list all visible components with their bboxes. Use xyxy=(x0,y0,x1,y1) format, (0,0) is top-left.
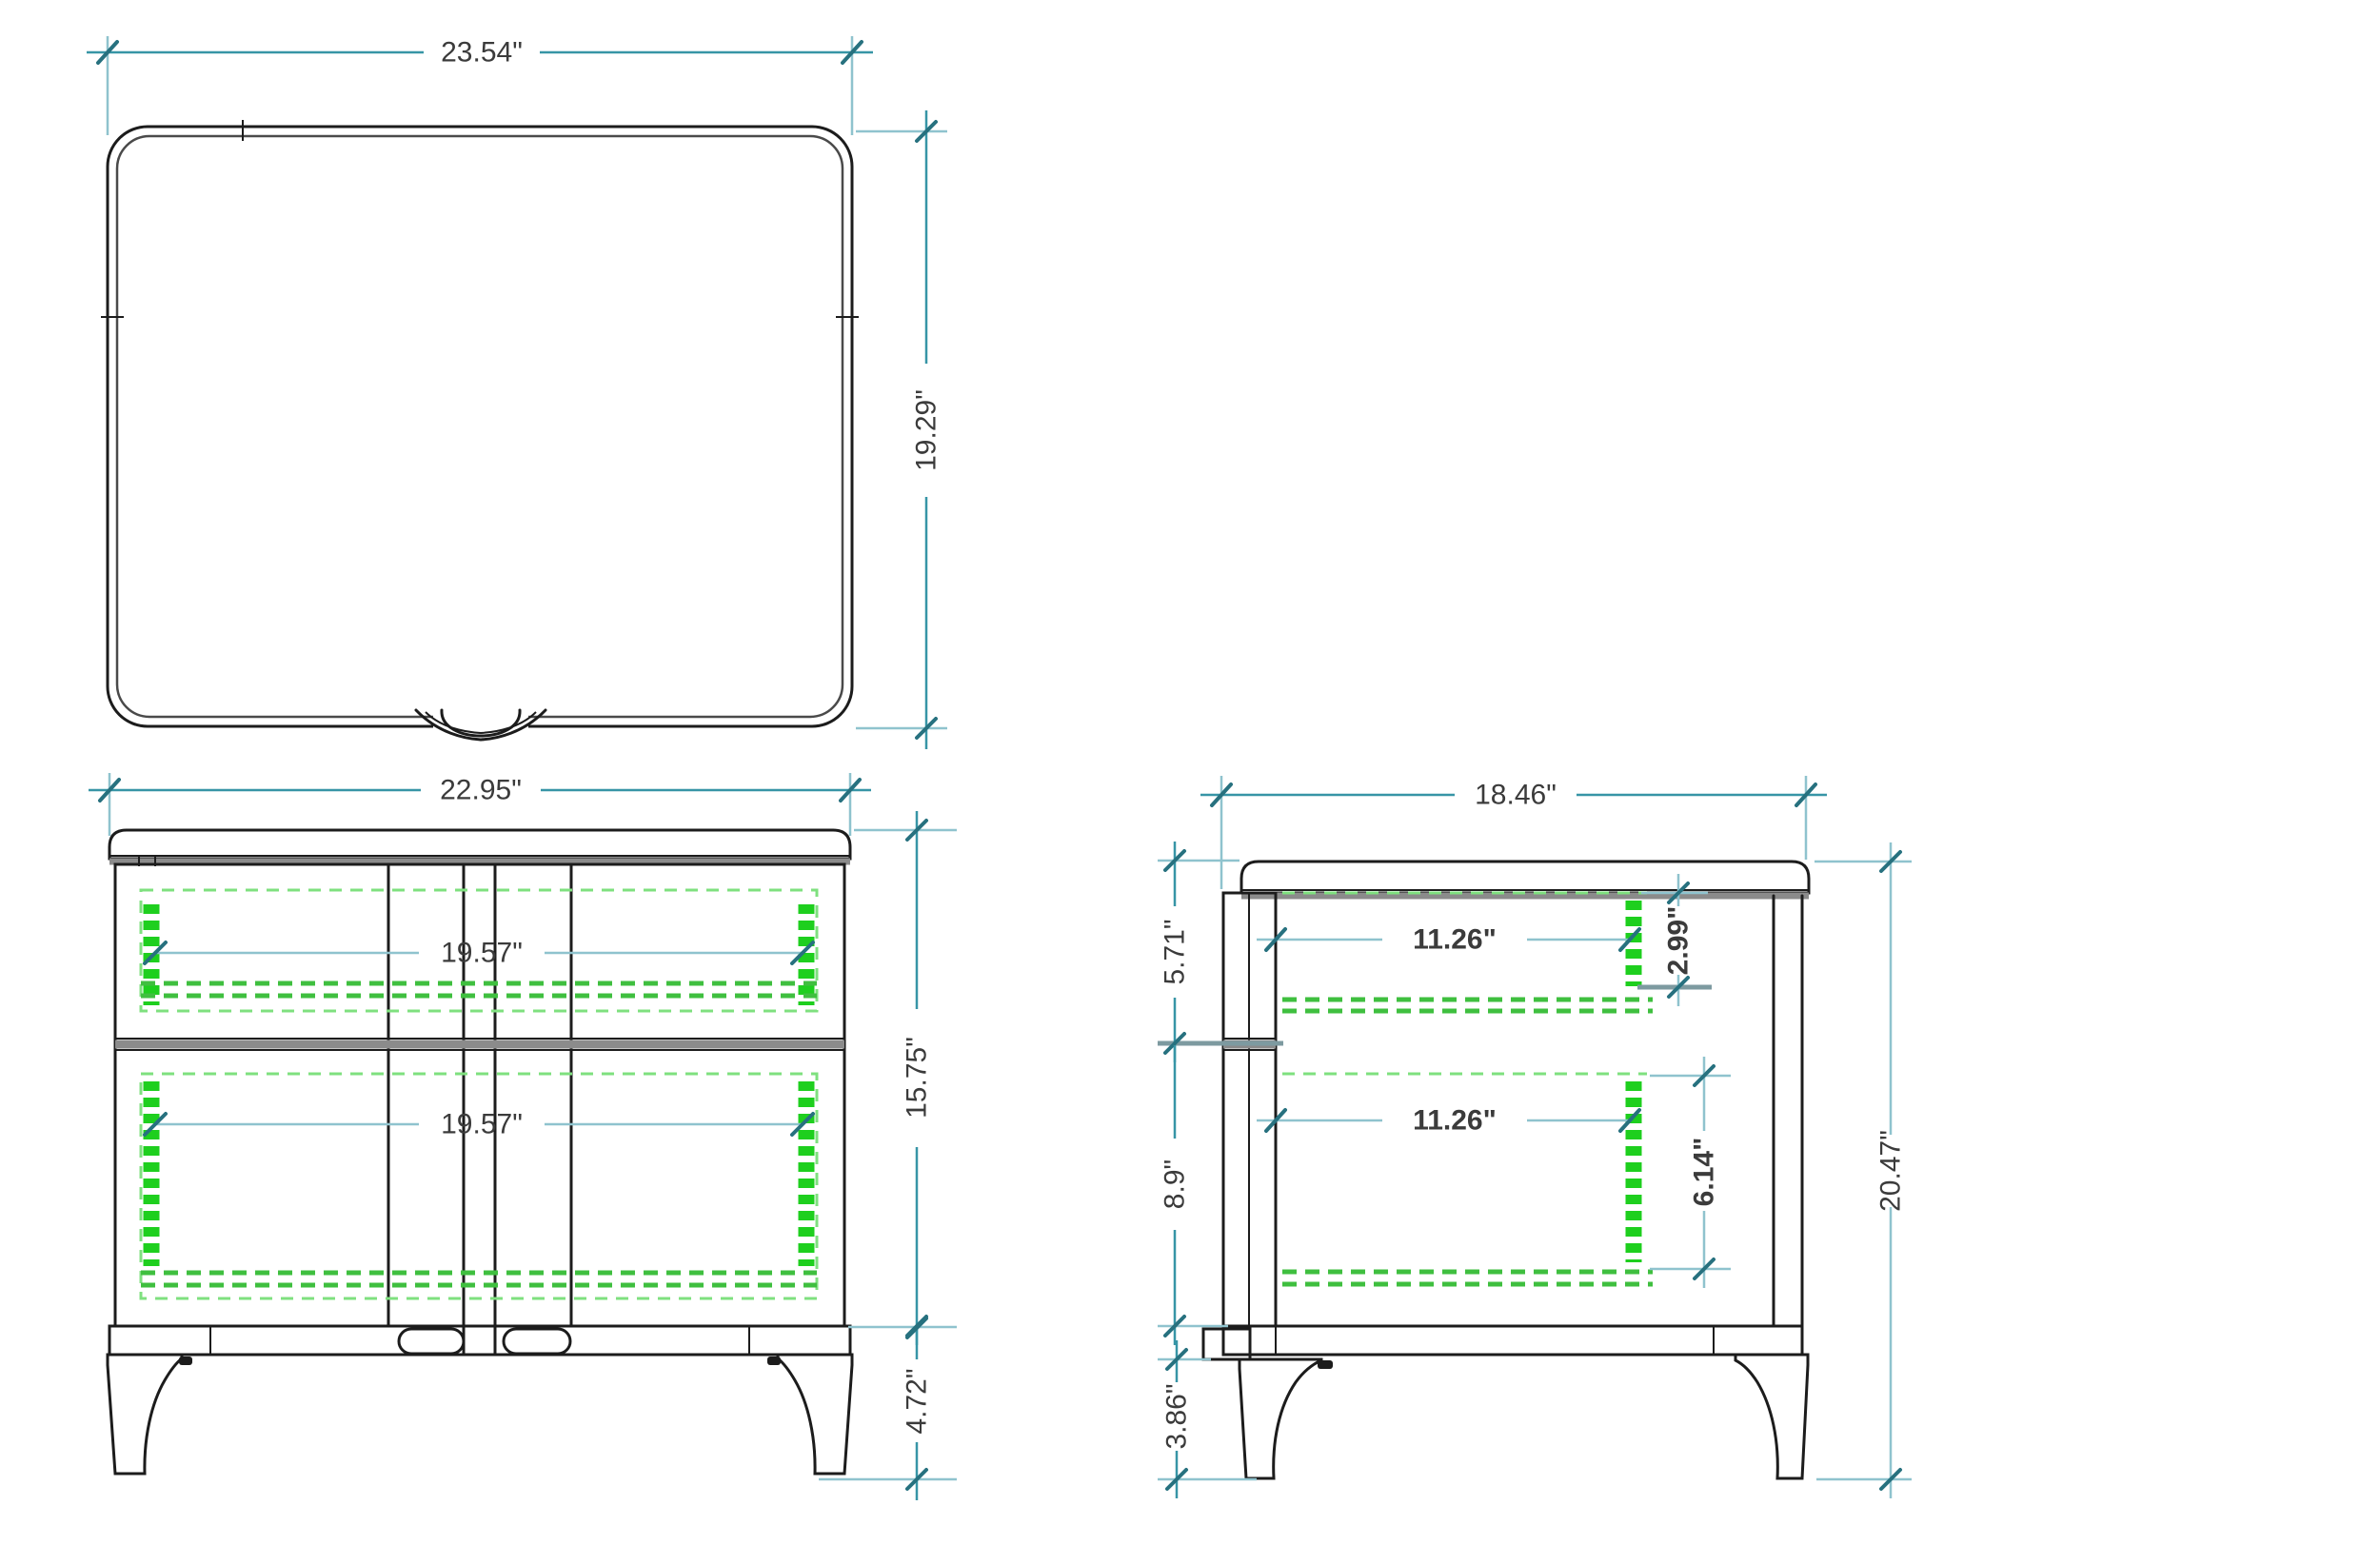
top-view-inner-edge xyxy=(117,136,843,717)
front-left-leg xyxy=(108,1355,182,1474)
front-left-leg-notch xyxy=(179,1357,192,1365)
dim-label-front-leg-height: 4.72" xyxy=(902,1368,933,1434)
dim-label-side-depth: 18.46" xyxy=(1475,780,1557,811)
side-base-rail xyxy=(1223,1326,1802,1355)
dim-side-pull-lower: 6.14" xyxy=(1650,1057,1731,1288)
dim-front-drawer-lower: 19.57" xyxy=(145,1109,813,1140)
dim-label-front-drawer-upper: 19.57" xyxy=(441,938,523,969)
front-top-slab xyxy=(109,830,850,859)
dim-label-side-pull-lower: 6.14" xyxy=(1689,1138,1720,1207)
dim-label-side-drawer-upper: 11.26" xyxy=(1413,924,1497,956)
front-right-leg xyxy=(778,1355,852,1474)
dim-top-depth: 19.29" xyxy=(856,110,947,749)
front-body xyxy=(115,864,844,1326)
dim-label-front-body-height: 15.75" xyxy=(902,1037,933,1119)
dim-side-total-height: 20.47" xyxy=(1815,842,1912,1498)
dim-label-side-lower-section: 8.9" xyxy=(1160,1159,1191,1209)
front-view-outline xyxy=(108,830,852,1474)
dim-top-width: 23.54" xyxy=(87,36,873,135)
drawing-canvas: 23.54" 19.29" xyxy=(0,0,2380,1565)
side-top-slab xyxy=(1241,862,1809,893)
front-view: 22.95" 19.57" 19.57" 15.75" xyxy=(89,773,957,1500)
dim-side-drawer-upper: 11.26" xyxy=(1257,924,1639,956)
front-apron-carving-left xyxy=(399,1329,464,1354)
front-apron-carving-right xyxy=(504,1329,570,1354)
dim-label-side-upper-section: 5.71" xyxy=(1160,919,1191,984)
side-front-leg xyxy=(1735,1355,1808,1478)
top-view-apron-ornament xyxy=(416,710,545,740)
dim-label-side-leg-height: 3.86" xyxy=(1161,1383,1193,1449)
dim-label-side-pull-upper: 2.99" xyxy=(1663,906,1695,976)
front-drawer-divider xyxy=(115,1039,844,1050)
dim-label-front-drawer-lower: 19.57" xyxy=(441,1109,523,1140)
top-view: 23.54" 19.29" xyxy=(87,36,947,749)
dim-side-lower-section: 8.9" xyxy=(1158,1045,1228,1345)
dim-side-drawer-lower: 11.26" xyxy=(1257,1105,1639,1137)
front-base-rail xyxy=(109,1326,850,1355)
dim-label-top-depth: 19.29" xyxy=(911,389,942,471)
dim-side-depth: 18.46" xyxy=(1200,776,1827,889)
front-lower-drawer-hidden xyxy=(141,1074,817,1298)
dim-side-pull-upper: 2.99" xyxy=(1637,874,1712,1006)
top-view-outer-edge xyxy=(108,127,852,726)
side-rear-leg-notch xyxy=(1318,1360,1333,1369)
side-rear-leg xyxy=(1240,1359,1321,1478)
lower-drawer-dashed-box xyxy=(141,1074,817,1298)
dim-label-front-width: 22.95" xyxy=(440,775,522,806)
front-right-leg-notch xyxy=(767,1357,781,1365)
three-view-drawing: 23.54" 19.29" xyxy=(0,0,2380,1565)
side-view: 18.46" 11.26" 11.26" 2.99" xyxy=(1158,776,1912,1498)
dim-label-top-width: 23.54" xyxy=(441,37,523,69)
dim-label-side-total-height: 20.47" xyxy=(1875,1130,1907,1212)
dim-label-side-drawer-lower: 11.26" xyxy=(1413,1105,1497,1137)
dim-front-body-height: 15.75" xyxy=(848,811,957,1345)
dim-front-width: 22.95" xyxy=(89,773,871,836)
dim-front-drawer-upper: 19.57" xyxy=(145,938,813,969)
top-view-outline xyxy=(101,120,859,740)
